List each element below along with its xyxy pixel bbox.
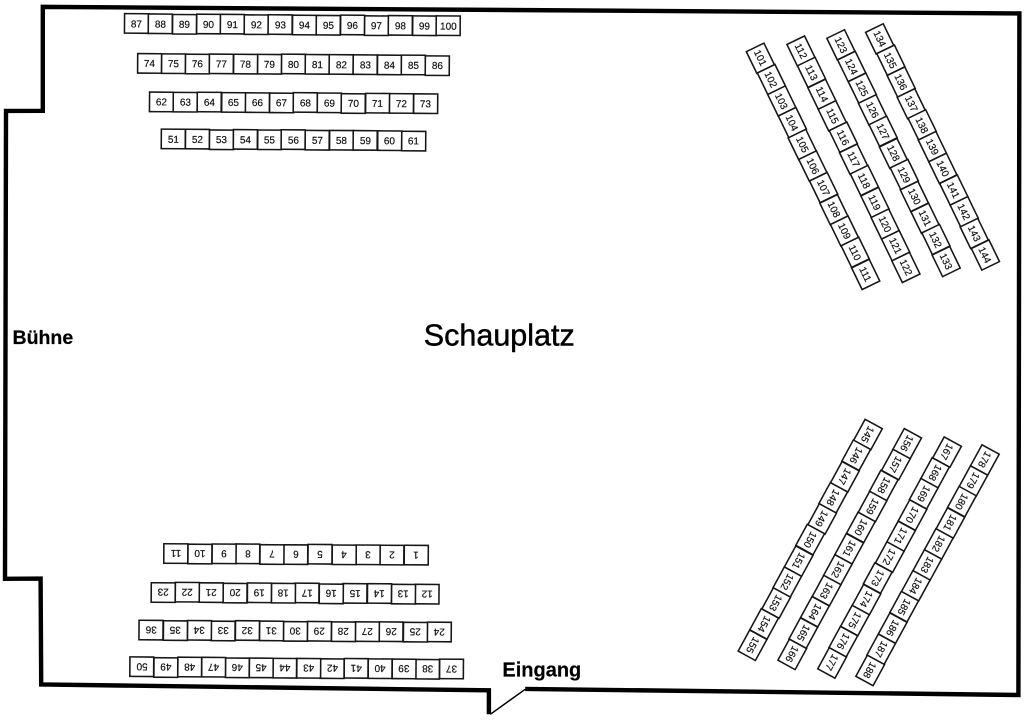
svg-text:27: 27: [361, 625, 373, 636]
svg-text:28: 28: [337, 625, 349, 636]
svg-text:46: 46: [231, 661, 243, 672]
svg-text:35: 35: [169, 624, 181, 635]
svg-text:86: 86: [432, 61, 444, 72]
svg-text:13: 13: [397, 587, 409, 598]
svg-text:12: 12: [421, 588, 433, 599]
svg-text:34: 34: [193, 624, 205, 635]
svg-text:18: 18: [277, 587, 289, 598]
svg-text:3: 3: [365, 548, 371, 559]
svg-text:58: 58: [336, 136, 348, 147]
svg-text:6: 6: [293, 548, 299, 559]
svg-text:80: 80: [288, 60, 300, 71]
svg-text:77: 77: [216, 59, 228, 70]
svg-text:55: 55: [264, 135, 276, 146]
svg-text:69: 69: [324, 99, 336, 110]
svg-text:56: 56: [288, 136, 300, 147]
svg-text:73: 73: [420, 99, 432, 110]
svg-text:61: 61: [408, 136, 420, 147]
svg-text:45: 45: [255, 661, 267, 672]
svg-text:98: 98: [395, 21, 407, 32]
svg-text:79: 79: [264, 60, 276, 71]
svg-text:26: 26: [385, 625, 397, 636]
svg-text:33: 33: [217, 624, 229, 635]
svg-text:22: 22: [181, 586, 193, 597]
svg-text:90: 90: [203, 20, 215, 31]
svg-text:78: 78: [240, 60, 252, 71]
svg-text:92: 92: [251, 20, 263, 31]
svg-text:95: 95: [323, 21, 335, 32]
svg-text:21: 21: [205, 586, 217, 597]
svg-text:47: 47: [207, 661, 219, 672]
svg-text:75: 75: [168, 59, 180, 70]
svg-text:91: 91: [227, 20, 239, 31]
svg-text:Eingang: Eingang: [502, 659, 581, 681]
svg-text:97: 97: [371, 21, 383, 32]
svg-text:71: 71: [372, 99, 384, 110]
svg-text:74: 74: [144, 59, 156, 70]
svg-text:60: 60: [384, 136, 396, 147]
svg-text:40: 40: [374, 662, 386, 673]
svg-text:82: 82: [336, 60, 348, 71]
svg-text:25: 25: [409, 625, 421, 636]
svg-text:2: 2: [389, 548, 395, 559]
svg-text:20: 20: [229, 586, 241, 597]
svg-text:Bühne: Bühne: [13, 327, 74, 349]
svg-text:51: 51: [168, 135, 180, 146]
svg-text:24: 24: [433, 626, 445, 637]
svg-text:32: 32: [241, 624, 253, 635]
svg-text:4: 4: [341, 548, 347, 559]
svg-text:8: 8: [245, 547, 251, 558]
svg-text:70: 70: [348, 99, 360, 110]
svg-text:68: 68: [300, 98, 312, 109]
svg-text:7: 7: [269, 548, 275, 559]
svg-text:15: 15: [349, 587, 361, 598]
svg-text:64: 64: [204, 98, 216, 109]
svg-text:76: 76: [192, 59, 204, 70]
svg-text:62: 62: [156, 97, 168, 108]
svg-text:87: 87: [131, 19, 143, 30]
svg-text:31: 31: [265, 624, 277, 635]
svg-text:36: 36: [145, 624, 157, 635]
svg-text:96: 96: [347, 21, 359, 32]
svg-text:67: 67: [276, 98, 288, 109]
svg-text:42: 42: [326, 662, 338, 673]
svg-text:19: 19: [253, 586, 265, 597]
svg-text:10: 10: [194, 547, 206, 558]
svg-text:72: 72: [396, 99, 408, 110]
svg-text:11: 11: [170, 547, 181, 558]
svg-text:Schauplatz: Schauplatz: [424, 318, 575, 352]
svg-text:29: 29: [313, 625, 325, 636]
svg-text:30: 30: [289, 625, 301, 636]
svg-text:88: 88: [155, 20, 167, 31]
svg-text:37: 37: [445, 663, 457, 674]
svg-text:38: 38: [422, 662, 434, 673]
svg-text:94: 94: [299, 21, 311, 32]
svg-text:84: 84: [384, 61, 396, 72]
svg-text:49: 49: [160, 661, 172, 672]
svg-text:63: 63: [180, 98, 192, 109]
svg-text:44: 44: [279, 661, 291, 672]
svg-text:66: 66: [252, 98, 264, 109]
svg-text:48: 48: [184, 661, 196, 672]
svg-text:100: 100: [440, 22, 457, 33]
svg-text:16: 16: [325, 587, 337, 598]
svg-text:17: 17: [301, 587, 313, 598]
svg-text:52: 52: [192, 135, 204, 146]
svg-text:99: 99: [419, 21, 431, 32]
svg-text:59: 59: [360, 136, 372, 147]
svg-text:23: 23: [157, 586, 169, 597]
svg-text:50: 50: [136, 660, 148, 671]
svg-text:53: 53: [216, 135, 228, 146]
svg-text:5: 5: [317, 548, 323, 559]
svg-text:39: 39: [398, 662, 410, 673]
svg-text:83: 83: [360, 60, 372, 71]
svg-text:9: 9: [221, 547, 227, 558]
svg-text:43: 43: [303, 662, 315, 673]
svg-text:54: 54: [240, 135, 252, 146]
svg-text:41: 41: [350, 662, 362, 673]
svg-text:1: 1: [413, 549, 419, 560]
svg-text:14: 14: [373, 587, 385, 598]
svg-text:65: 65: [228, 98, 240, 109]
svg-text:81: 81: [312, 60, 324, 71]
svg-text:89: 89: [179, 20, 191, 31]
svg-text:57: 57: [312, 136, 324, 147]
svg-text:85: 85: [408, 61, 420, 72]
svg-text:93: 93: [275, 20, 287, 31]
